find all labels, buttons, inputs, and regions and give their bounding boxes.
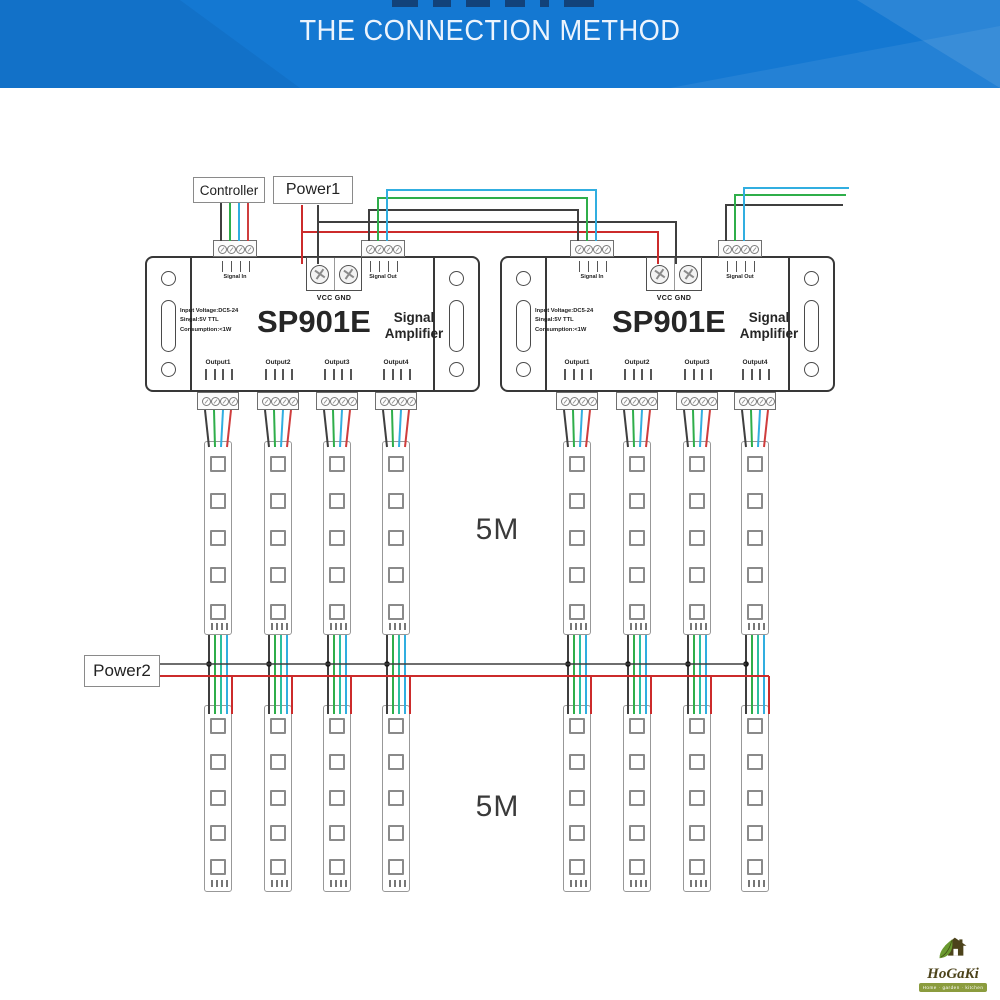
led-strip — [563, 705, 591, 892]
terminal-screw — [398, 397, 407, 406]
solder-pad — [763, 880, 765, 887]
terminal-screw — [699, 397, 708, 406]
header-banner: THE CONNECTION METHOD — [0, 0, 1000, 88]
solder-pad — [394, 623, 396, 630]
clipped-top-text — [392, 0, 594, 8]
solder-pad — [226, 880, 228, 887]
wire-wire-black — [726, 205, 843, 241]
solder-pad — [286, 623, 288, 630]
device-type: Signal Amplifier — [375, 310, 453, 341]
output-label: Output1 — [193, 359, 243, 366]
led-chip — [629, 530, 645, 546]
led-chip — [210, 718, 226, 734]
led-chip — [388, 493, 404, 509]
led-chip — [329, 530, 345, 546]
pin-mark — [606, 261, 608, 272]
solder-pad — [340, 880, 342, 887]
led-chip — [210, 456, 226, 472]
mount-hole — [161, 271, 176, 286]
solder-pad — [695, 623, 697, 630]
led-chip — [569, 567, 585, 583]
terminal-screw — [393, 245, 402, 254]
led-chip — [689, 790, 705, 806]
led-chip — [270, 604, 286, 620]
pin-mark — [736, 261, 738, 272]
output-connector — [197, 392, 239, 410]
output-connector — [616, 392, 658, 410]
solder-pad — [211, 623, 213, 630]
pin-mark — [400, 369, 402, 380]
terminal-screw — [262, 397, 271, 406]
led-chip — [629, 859, 645, 875]
solder-pad — [226, 623, 228, 630]
pin-mark — [588, 261, 590, 272]
power-terminal — [306, 257, 362, 291]
terminal-screw — [407, 397, 416, 406]
led-chip — [270, 718, 286, 734]
solder-pad — [216, 623, 218, 630]
signal-in-connector — [570, 240, 614, 257]
controller-box: Controller — [193, 177, 265, 203]
output-connector — [734, 392, 776, 410]
power2-box: Power2 — [84, 655, 160, 687]
terminal-screw — [741, 245, 750, 254]
pin-mark — [370, 261, 372, 272]
led-strip — [623, 705, 651, 892]
led-chip — [329, 825, 345, 841]
terminal-screw — [588, 397, 597, 406]
pin-mark — [742, 369, 744, 380]
pin-mark — [324, 369, 326, 380]
led-chip — [329, 604, 345, 620]
solder-pad — [753, 623, 755, 630]
led-strip — [264, 705, 292, 892]
segment-length-top: 5M — [455, 513, 540, 547]
solder-pad — [748, 880, 750, 887]
power-terminal — [646, 257, 702, 291]
solder-pad — [630, 880, 632, 887]
led-chip — [689, 859, 705, 875]
pin-mark — [222, 369, 224, 380]
led-strip — [264, 441, 292, 635]
led-strip — [741, 441, 769, 635]
wire-wire-cyan — [387, 190, 596, 241]
led-chip — [270, 567, 286, 583]
led-chip — [629, 456, 645, 472]
terminal-screw — [723, 245, 732, 254]
led-chip — [388, 567, 404, 583]
led-strip — [623, 441, 651, 635]
pin-mark — [597, 261, 599, 272]
terminal-screw — [227, 245, 236, 254]
spec-line: Singal:5V TTL — [180, 316, 238, 325]
signal-out-connector — [361, 240, 405, 257]
pin-mark — [350, 369, 352, 380]
terminal-screw — [681, 397, 690, 406]
led-chip — [747, 604, 763, 620]
junction-dot — [384, 661, 390, 667]
solder-pad — [281, 880, 283, 887]
led-chip — [569, 754, 585, 770]
terminal-screw — [236, 245, 245, 254]
pin-mark — [759, 369, 761, 380]
solder-pad — [345, 623, 347, 630]
wire-wire-black — [369, 210, 578, 241]
led-chip — [569, 718, 585, 734]
solder-pad — [580, 623, 582, 630]
led-chip — [747, 718, 763, 734]
pin-mark — [745, 261, 747, 272]
led-strip — [323, 441, 351, 635]
led-strip — [683, 441, 711, 635]
solder-pad — [335, 623, 337, 630]
pin-mark — [291, 369, 293, 380]
pin-mark — [633, 369, 635, 380]
led-chip — [329, 456, 345, 472]
leaf-house-icon — [934, 934, 972, 961]
led-chip — [689, 456, 705, 472]
led-chip — [210, 493, 226, 509]
led-strip — [741, 705, 769, 892]
connection-diagram-page: THE CONNECTION METHOD Controller Power1 … — [0, 0, 1000, 1000]
led-chip — [747, 825, 763, 841]
brand-logo: HoGaKi Home · garden · kitchen — [908, 934, 998, 992]
spec-line: Consumption:<1W — [180, 326, 238, 335]
solder-pad — [575, 880, 577, 887]
pin-mark — [684, 369, 686, 380]
led-chip — [569, 456, 585, 472]
page-title: THE CONNECTION METHOD — [29, 15, 950, 48]
pin-mark — [249, 261, 251, 272]
signal-out-connector-label: Signal Out — [715, 274, 765, 280]
led-chip — [629, 604, 645, 620]
solder-pad — [211, 880, 213, 887]
led-strip — [382, 705, 410, 892]
solder-pad — [271, 623, 273, 630]
pin-mark — [581, 369, 583, 380]
led-chip — [689, 825, 705, 841]
pin-mark — [397, 261, 399, 272]
output-connector — [676, 392, 718, 410]
led-strip — [683, 705, 711, 892]
led-chip — [210, 530, 226, 546]
solder-pad — [640, 880, 642, 887]
led-chip — [329, 754, 345, 770]
terminal-screw — [593, 245, 602, 254]
solder-pad — [340, 623, 342, 630]
pin-mark — [573, 369, 575, 380]
solder-pad — [330, 623, 332, 630]
led-strip — [323, 705, 351, 892]
led-chip — [270, 456, 286, 472]
output-label: Output3 — [312, 359, 362, 366]
solder-pad — [570, 623, 572, 630]
spec-line: Input Voltage:DC5-24 — [180, 307, 238, 316]
solder-pad — [335, 880, 337, 887]
terminal-screw — [579, 397, 588, 406]
terminal-screw-large — [679, 265, 698, 284]
pin-mark — [710, 369, 712, 380]
junction-dot — [743, 661, 749, 667]
led-chip — [569, 790, 585, 806]
segment-length-bottom: 5M — [455, 790, 540, 824]
solder-pad — [570, 880, 572, 887]
junction-dot — [206, 661, 212, 667]
solder-pad — [221, 623, 223, 630]
solder-pad — [700, 623, 702, 630]
terminal-screw — [321, 397, 330, 406]
power-terminal-label: VCC GND — [306, 295, 362, 302]
mount-hole — [449, 362, 464, 377]
solder-pad — [389, 623, 391, 630]
pin-mark — [751, 369, 753, 380]
terminal-screw — [280, 397, 289, 406]
mount-hole — [449, 271, 464, 286]
signal-in-connector — [213, 240, 257, 257]
device-type: Signal Amplifier — [730, 310, 808, 341]
terminal-screw — [220, 397, 229, 406]
output-connector — [375, 392, 417, 410]
terminal-screw — [202, 397, 211, 406]
junction-dot — [685, 661, 691, 667]
solder-pad — [389, 880, 391, 887]
terminal-screw — [570, 397, 579, 406]
pin-mark — [341, 369, 343, 380]
led-chip — [210, 790, 226, 806]
wire-wire-cyan — [744, 188, 849, 241]
terminal-screw — [389, 397, 398, 406]
pin-mark — [205, 369, 207, 380]
wire-wire-green — [735, 195, 846, 241]
junction-dot — [266, 661, 272, 667]
pin-mark — [768, 369, 770, 380]
terminal-screw — [229, 397, 238, 406]
terminal-screw — [575, 245, 584, 254]
led-chip — [747, 859, 763, 875]
led-chip — [629, 790, 645, 806]
terminal-screw — [766, 397, 775, 406]
solder-pad — [690, 880, 692, 887]
solder-pad — [758, 880, 760, 887]
terminal-screw — [211, 397, 220, 406]
led-chip — [270, 790, 286, 806]
terminal-screw — [375, 245, 384, 254]
led-strip — [204, 705, 232, 892]
power1-box: Power1 — [273, 176, 353, 204]
terminal-screw — [380, 397, 389, 406]
output-label: Output4 — [371, 359, 421, 366]
led-chip — [689, 604, 705, 620]
terminal-screw — [289, 397, 298, 406]
terminal-screw — [708, 397, 717, 406]
led-chip — [388, 754, 404, 770]
led-chip — [689, 567, 705, 583]
solder-pad — [404, 623, 406, 630]
terminal-screw — [339, 397, 348, 406]
led-chip — [747, 530, 763, 546]
pin-mark — [579, 261, 581, 272]
mount-slot — [161, 300, 176, 352]
led-chip — [388, 530, 404, 546]
solder-pad — [216, 880, 218, 887]
signal-out-connector-label: Signal Out — [358, 274, 408, 280]
led-chip — [210, 567, 226, 583]
terminal-screw-large — [310, 265, 329, 284]
solder-pad — [281, 623, 283, 630]
terminal-screw — [561, 397, 570, 406]
pin-mark — [641, 369, 643, 380]
pin-mark — [754, 261, 756, 272]
led-chip — [329, 718, 345, 734]
led-chip — [569, 530, 585, 546]
led-chip — [210, 604, 226, 620]
led-chip — [747, 790, 763, 806]
led-chip — [747, 754, 763, 770]
led-strip — [204, 441, 232, 635]
led-chip — [388, 718, 404, 734]
led-chip — [689, 493, 705, 509]
terminal-screw — [732, 245, 741, 254]
pin-mark — [214, 369, 216, 380]
led-chip — [569, 604, 585, 620]
solder-pad — [705, 880, 707, 887]
terminal-screw — [348, 397, 357, 406]
led-chip — [210, 859, 226, 875]
pin-mark — [650, 369, 652, 380]
mount-slot — [516, 300, 531, 352]
power-terminal-label: VCC GND — [646, 295, 702, 302]
solder-pad — [330, 880, 332, 887]
led-chip — [329, 859, 345, 875]
solder-pad — [221, 880, 223, 887]
signal-in-connector-label: Signal In — [210, 274, 260, 280]
pin-mark — [701, 369, 703, 380]
solder-pad — [640, 623, 642, 630]
mount-hole — [804, 362, 819, 377]
solder-pad — [271, 880, 273, 887]
output-connector — [556, 392, 598, 410]
solder-pad — [585, 880, 587, 887]
pin-mark — [274, 369, 276, 380]
pin-mark — [624, 369, 626, 380]
solder-pad — [695, 880, 697, 887]
spec-line: Consumption:<1W — [535, 326, 593, 335]
solder-pad — [645, 623, 647, 630]
led-chip — [629, 825, 645, 841]
led-chip — [689, 718, 705, 734]
led-chip — [629, 567, 645, 583]
pin-mark — [240, 261, 242, 272]
terminal-screw — [584, 245, 593, 254]
device-model: SP901E — [257, 304, 369, 340]
terminal-screw — [602, 245, 611, 254]
pin-mark — [383, 369, 385, 380]
led-chip — [329, 790, 345, 806]
brand-tagline: Home · garden · kitchen — [919, 983, 987, 992]
output-label: Output4 — [730, 359, 780, 366]
pin-mark — [564, 369, 566, 380]
led-chip — [747, 567, 763, 583]
pin-mark — [392, 369, 394, 380]
pin-mark — [388, 261, 390, 272]
signal-in-connector-label: Signal In — [567, 274, 617, 280]
terminal-screw — [621, 397, 630, 406]
led-chip — [388, 859, 404, 875]
device-model: SP901E — [612, 304, 724, 340]
mount-hole — [161, 362, 176, 377]
junction-dot — [565, 661, 571, 667]
pin-mark — [727, 261, 729, 272]
led-chip — [689, 754, 705, 770]
solder-pad — [276, 623, 278, 630]
pin-mark — [231, 261, 233, 272]
solder-pad — [585, 623, 587, 630]
terminal-screw — [271, 397, 280, 406]
terminal-screw — [330, 397, 339, 406]
terminal-divider — [674, 258, 675, 290]
led-chip — [329, 493, 345, 509]
solder-pad — [763, 623, 765, 630]
led-chip — [629, 718, 645, 734]
terminal-divider — [334, 258, 335, 290]
output-connector — [316, 392, 358, 410]
solder-pad — [630, 623, 632, 630]
pin-mark — [379, 261, 381, 272]
output-label: Output2 — [612, 359, 662, 366]
brand-name: HoGaKi — [908, 967, 998, 982]
terminal-screw — [748, 397, 757, 406]
signal-out-connector — [718, 240, 762, 257]
led-chip — [388, 604, 404, 620]
terminal-screw — [639, 397, 648, 406]
pin-mark — [231, 369, 233, 380]
led-chip — [270, 493, 286, 509]
pin-mark — [693, 369, 695, 380]
led-chip — [270, 530, 286, 546]
terminal-screw — [750, 245, 759, 254]
pin-mark — [590, 369, 592, 380]
led-chip — [210, 754, 226, 770]
led-strip — [382, 441, 410, 635]
led-chip — [270, 825, 286, 841]
led-chip — [569, 859, 585, 875]
pin-mark — [409, 369, 411, 380]
pin-mark — [265, 369, 267, 380]
solder-pad — [635, 623, 637, 630]
terminal-screw — [648, 397, 657, 406]
led-chip — [629, 493, 645, 509]
terminal-screw — [218, 245, 227, 254]
mount-hole — [804, 271, 819, 286]
solder-pad — [635, 880, 637, 887]
led-chip — [388, 790, 404, 806]
terminal-screw — [366, 245, 375, 254]
solder-pad — [700, 880, 702, 887]
solder-pad — [758, 623, 760, 630]
junction-dot — [625, 661, 631, 667]
device-specs: Input Voltage:DC5-24 Singal:5V TTL Consu… — [180, 307, 238, 335]
terminal-screw — [739, 397, 748, 406]
solder-pad — [748, 623, 750, 630]
led-chip — [270, 754, 286, 770]
solder-pad — [345, 880, 347, 887]
terminal-screw — [690, 397, 699, 406]
output-label: Output2 — [253, 359, 303, 366]
solder-pad — [394, 880, 396, 887]
led-chip — [210, 825, 226, 841]
solder-pad — [404, 880, 406, 887]
led-chip — [629, 754, 645, 770]
